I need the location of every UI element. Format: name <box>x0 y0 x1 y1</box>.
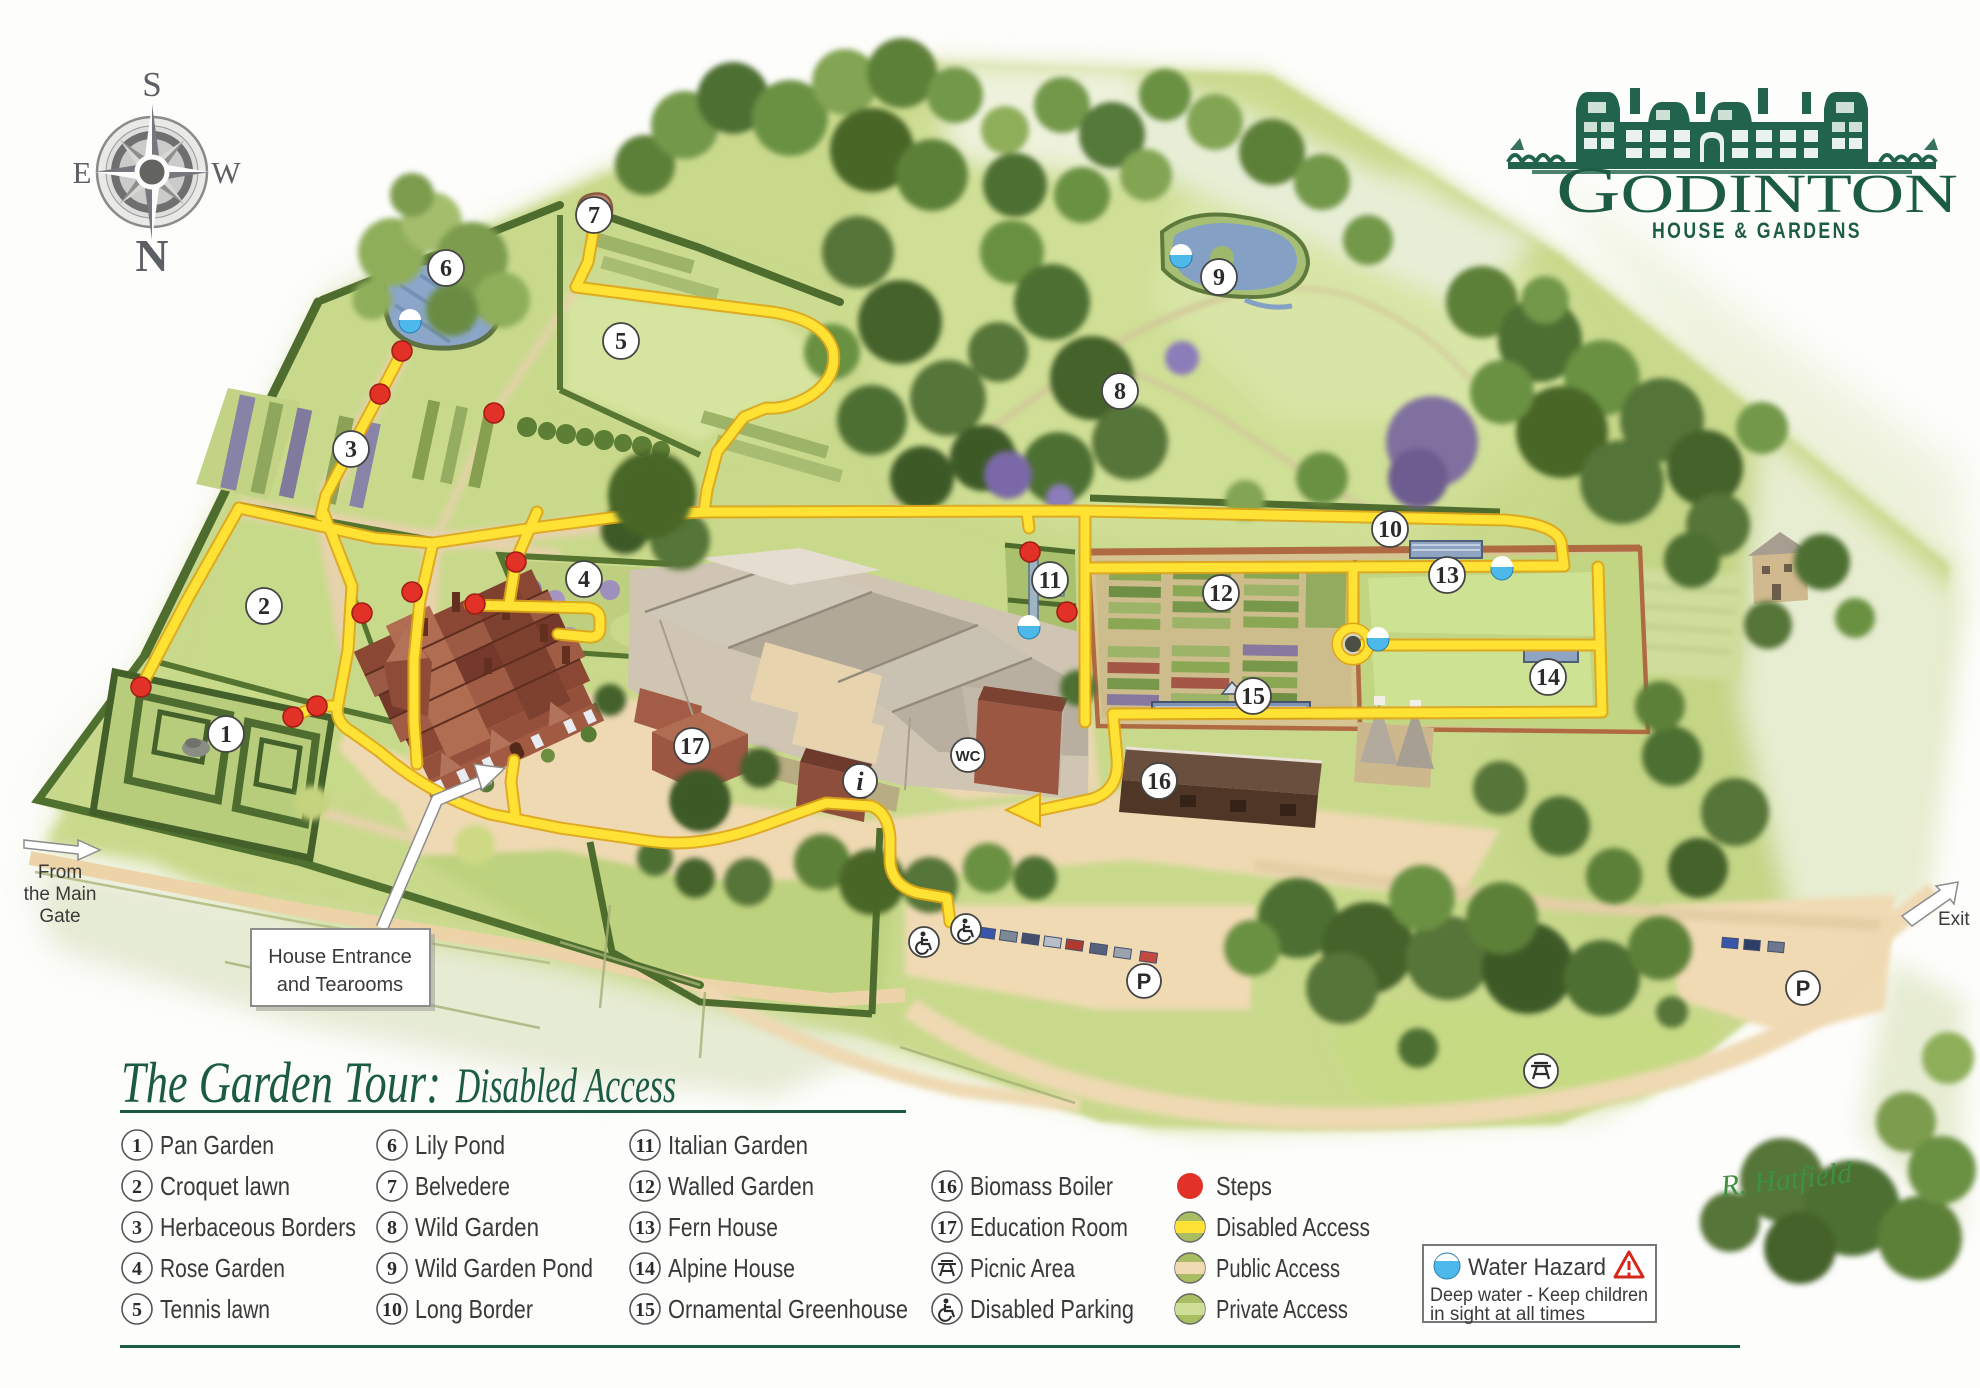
svg-text:1: 1 <box>220 722 232 748</box>
svg-text:17: 17 <box>937 1217 957 1239</box>
svg-text:Disabled Access: Disabled Access <box>455 1057 676 1113</box>
svg-text:Biomass Boiler: Biomass Boiler <box>970 1171 1113 1201</box>
svg-text:Croquet lawn: Croquet lawn <box>160 1171 290 1201</box>
svg-text:Herbaceous Borders: Herbaceous Borders <box>160 1212 356 1242</box>
svg-text:Lily Pond: Lily Pond <box>415 1130 505 1160</box>
svg-text:4: 4 <box>578 567 590 593</box>
svg-text:Gate: Gate <box>39 906 80 927</box>
svg-text:From: From <box>38 862 82 883</box>
svg-text:15: 15 <box>1241 684 1265 710</box>
svg-text:7: 7 <box>588 203 600 229</box>
svg-text:14: 14 <box>635 1258 655 1280</box>
svg-text:12: 12 <box>635 1176 655 1198</box>
svg-text:Water Hazard: Water Hazard <box>1468 1254 1606 1281</box>
svg-text:HOUSE & GARDENS: HOUSE & GARDENS <box>1652 218 1862 243</box>
svg-text:P: P <box>1796 976 1811 1001</box>
svg-text:9: 9 <box>1213 265 1225 291</box>
svg-text:12: 12 <box>1209 581 1233 607</box>
svg-text:2: 2 <box>258 594 270 620</box>
svg-text:17: 17 <box>680 734 704 760</box>
svg-text:Fern House: Fern House <box>668 1212 778 1242</box>
svg-text:7: 7 <box>387 1176 397 1198</box>
svg-text:15: 15 <box>635 1299 655 1321</box>
svg-text:W: W <box>211 155 241 190</box>
svg-text:Education Room: Education Room <box>970 1212 1128 1242</box>
svg-text:8: 8 <box>387 1217 397 1239</box>
svg-text:13: 13 <box>1435 563 1459 589</box>
svg-text:Picnic Area: Picnic Area <box>970 1253 1075 1283</box>
svg-text:S: S <box>142 65 161 104</box>
svg-text:1: 1 <box>132 1135 142 1157</box>
svg-text:Pan Garden: Pan Garden <box>160 1130 274 1160</box>
svg-text:Wild Garden: Wild Garden <box>415 1212 539 1242</box>
svg-text:Ornamental Greenhouse: Ornamental Greenhouse <box>668 1294 908 1324</box>
svg-text:3: 3 <box>345 437 357 463</box>
svg-text:Disabled Parking: Disabled Parking <box>970 1294 1134 1324</box>
svg-text:11: 11 <box>1039 568 1062 594</box>
svg-text:Rose Garden: Rose Garden <box>160 1253 285 1283</box>
svg-text:Belvedere: Belvedere <box>415 1171 510 1201</box>
svg-text:House Entrance: House Entrance <box>268 946 411 968</box>
svg-text:Long Border: Long Border <box>415 1294 533 1324</box>
svg-text:10: 10 <box>382 1299 402 1321</box>
svg-text:9: 9 <box>387 1258 397 1280</box>
svg-text:13: 13 <box>635 1217 655 1239</box>
svg-text:16: 16 <box>1147 769 1171 795</box>
svg-text:the Main: the Main <box>24 884 97 905</box>
svg-text:The Garden Tour:: The Garden Tour: <box>121 1050 441 1115</box>
svg-text:Exit: Exit <box>1938 909 1970 930</box>
svg-text:6: 6 <box>387 1135 397 1157</box>
svg-text:14: 14 <box>1536 665 1560 691</box>
svg-text:P: P <box>1137 969 1152 994</box>
svg-text:8: 8 <box>1114 379 1126 405</box>
svg-text:and Tearooms: and Tearooms <box>277 974 403 996</box>
svg-text:Walled Garden: Walled Garden <box>668 1171 814 1201</box>
svg-text:5: 5 <box>615 329 627 355</box>
svg-text:WC: WC <box>956 748 981 765</box>
svg-text:2: 2 <box>132 1176 142 1198</box>
svg-text:4: 4 <box>132 1258 142 1280</box>
svg-text:Steps: Steps <box>1216 1171 1272 1201</box>
svg-text:Private Access: Private Access <box>1216 1294 1348 1324</box>
svg-text:6: 6 <box>440 256 452 282</box>
svg-text:Public Access: Public Access <box>1216 1253 1340 1283</box>
svg-text:3: 3 <box>132 1217 142 1239</box>
svg-text:Tennis lawn: Tennis lawn <box>160 1294 270 1324</box>
svg-text:10: 10 <box>1378 517 1402 543</box>
svg-text:GODINTON: GODINTON <box>1556 154 1958 227</box>
svg-text:5: 5 <box>132 1299 142 1321</box>
svg-text:Deep water - Keep children: Deep water - Keep children <box>1430 1285 1648 1306</box>
svg-text:11: 11 <box>636 1135 655 1157</box>
svg-text:Alpine House: Alpine House <box>668 1253 795 1283</box>
svg-text:N: N <box>135 230 168 281</box>
svg-text:Wild Garden Pond: Wild Garden Pond <box>415 1253 593 1283</box>
svg-text:in sight at all times: in sight at all times <box>1430 1304 1585 1325</box>
svg-text:16: 16 <box>937 1176 957 1198</box>
svg-text:E: E <box>73 155 92 190</box>
svg-text:i: i <box>856 767 864 796</box>
svg-text:Disabled Access: Disabled Access <box>1216 1212 1370 1242</box>
svg-text:Italian Garden: Italian Garden <box>668 1130 808 1160</box>
